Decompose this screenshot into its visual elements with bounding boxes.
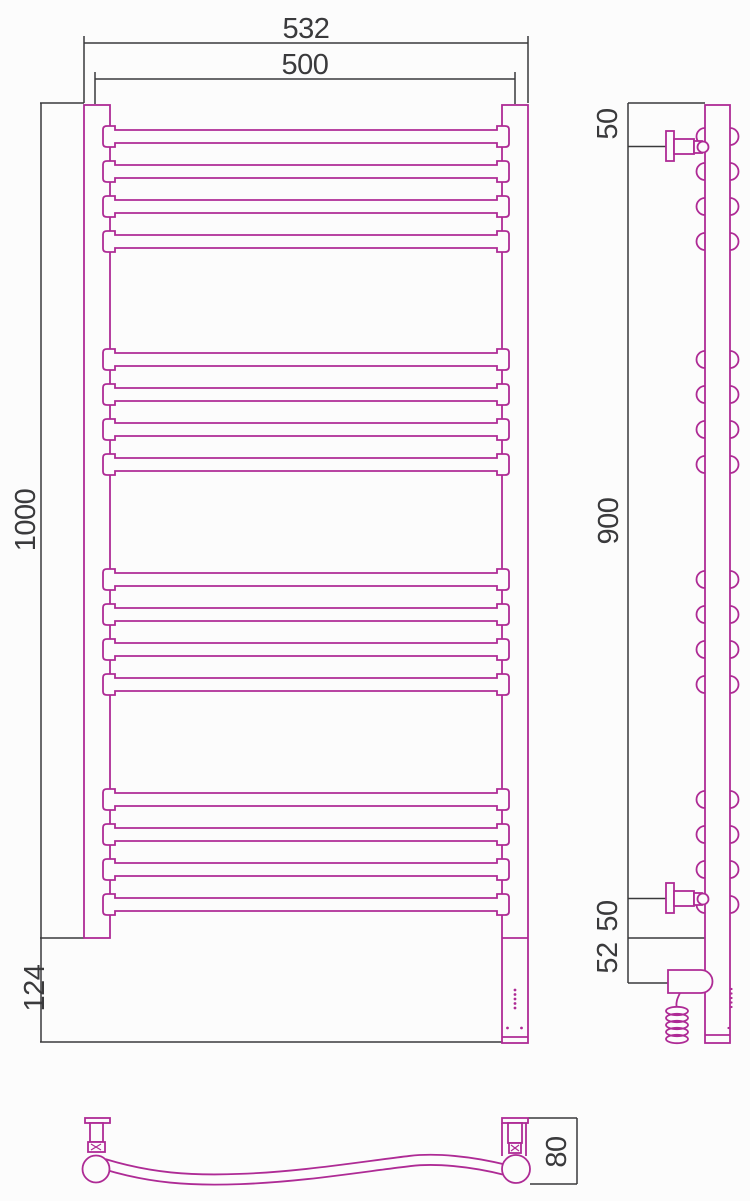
dim-bottom-bracket-offset: 50 — [592, 900, 624, 931]
side-bar-end-front — [730, 606, 739, 623]
towel-bar — [103, 161, 509, 182]
cable-coil — [666, 1007, 688, 1043]
side-bar-end-back — [697, 386, 706, 403]
front-bars — [103, 126, 509, 915]
drawing-canvas: 532 500 1000 124 50 900 50 52 80 — [0, 0, 750, 1201]
towel-bar — [103, 384, 509, 405]
top-wall-bracket — [666, 131, 709, 161]
dim-depth: 80 — [541, 1136, 573, 1167]
side-bar-end-front — [730, 421, 739, 438]
side-bar-end-front — [730, 198, 739, 215]
side-bar-end-front — [730, 163, 739, 180]
towel-bar — [103, 894, 509, 915]
heating-element — [668, 970, 713, 993]
side-bar-end-back — [697, 676, 706, 693]
side-bar-end-back — [697, 791, 706, 808]
towel-bar — [103, 126, 509, 147]
bottom-wall-bracket — [666, 883, 709, 913]
side-bar-end-front — [730, 676, 739, 693]
dim-height: 1000 — [10, 489, 42, 552]
towel-bar — [103, 231, 509, 252]
side-bar-end-front — [730, 386, 739, 403]
side-bar-end-front — [730, 861, 739, 878]
towel-bar — [103, 569, 509, 590]
top-view — [83, 1118, 531, 1183]
side-bar-end-back — [697, 641, 706, 658]
side-collector-tube — [705, 105, 730, 1043]
towel-bar — [103, 349, 509, 370]
top-view-right-bracket — [502, 1118, 528, 1156]
side-bar-end-front — [730, 456, 739, 473]
dim-top-bracket-offset: 50 — [592, 108, 624, 139]
side-bar-end-back — [697, 606, 706, 623]
side-bar-end-back — [697, 351, 706, 368]
side-bar-end-front — [730, 233, 739, 250]
side-bar-end-front — [730, 128, 739, 145]
side-bar-end-back — [697, 163, 706, 180]
towel-bar — [103, 674, 509, 695]
towel-bar — [103, 639, 509, 660]
left-collector-rail — [84, 105, 110, 938]
dim-axis-width: 500 — [282, 49, 329, 81]
towel-bar — [103, 419, 509, 440]
side-bar-end-back — [697, 198, 706, 215]
towel-bar — [103, 789, 509, 810]
side-bar-end-back — [697, 233, 706, 250]
side-bar-end-front — [730, 571, 739, 588]
side-bar-end-front — [730, 791, 739, 808]
side-view — [666, 105, 739, 1043]
front-view — [84, 105, 528, 1043]
towel-bar — [103, 196, 509, 217]
towel-bar — [103, 824, 509, 845]
side-bar-end-front — [730, 351, 739, 368]
towel-bar — [103, 454, 509, 475]
side-bar-end-back — [697, 456, 706, 473]
side-bar-end-back — [697, 861, 706, 878]
dim-heater-offset: 52 — [592, 942, 624, 973]
top-view-left-bracket — [85, 1118, 110, 1152]
towel-bar — [103, 604, 509, 625]
towel-bar — [103, 859, 509, 880]
right-collector-section — [502, 1155, 530, 1183]
power-cable — [676, 993, 680, 1007]
left-collector-section — [83, 1156, 110, 1183]
side-bar-end-front — [730, 641, 739, 658]
side-bar-end-back — [697, 421, 706, 438]
dim-bracket-span: 900 — [593, 498, 625, 545]
dim-bottom-height: 124 — [19, 964, 51, 1011]
dim-overall-width: 532 — [283, 13, 330, 45]
side-bar-end-front — [730, 826, 739, 843]
towel-rail-technical-drawing: 532 500 1000 124 50 900 50 52 80 — [0, 0, 750, 1201]
side-bar-end-front — [730, 896, 739, 913]
side-bar-end-back — [697, 826, 706, 843]
side-bar-end-back — [697, 571, 706, 588]
